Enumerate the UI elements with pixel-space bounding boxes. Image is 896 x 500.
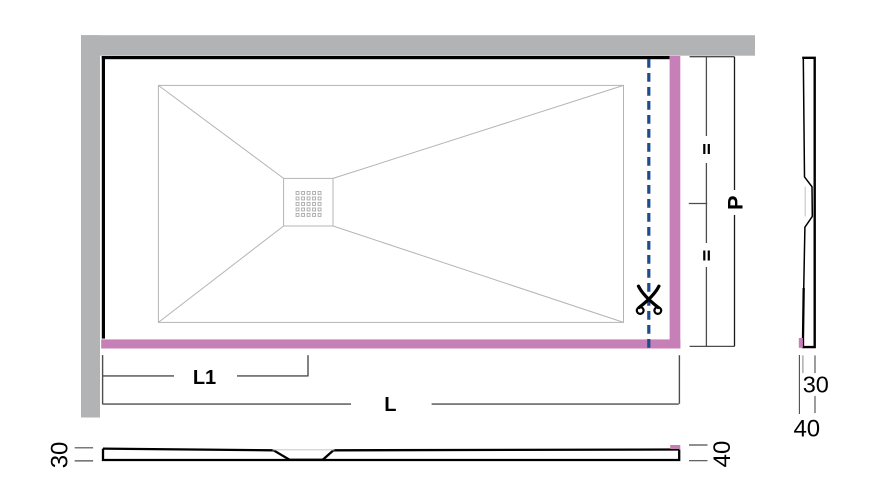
svg-text:P: P [724,196,748,210]
svg-text:L1: L1 [193,367,216,389]
svg-text:30: 30 [46,442,73,469]
svg-text:30: 30 [803,372,829,398]
svg-text:40: 40 [709,441,736,468]
svg-text:40: 40 [793,416,820,443]
svg-text:L: L [384,394,396,416]
